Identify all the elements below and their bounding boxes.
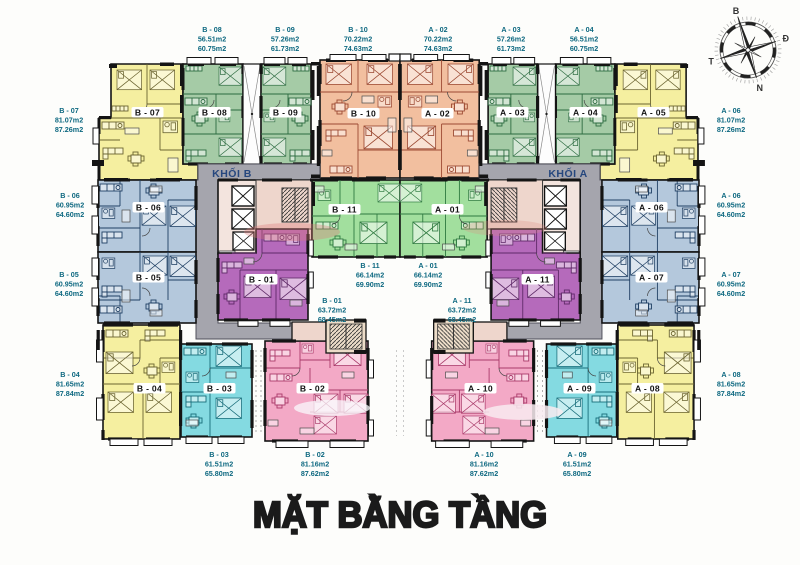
svg-text:70.22m2: 70.22m2 [344,35,372,44]
svg-text:B - 11: B - 11 [332,205,357,215]
svg-text:57.26m2: 57.26m2 [271,35,299,44]
svg-text:A - 08: A - 08 [635,384,660,394]
svg-text:60.95m2: 60.95m2 [56,201,84,210]
svg-text:A - 09: A - 09 [567,384,592,394]
svg-text:B - 03: B - 03 [207,384,232,394]
svg-text:68.45m2: 68.45m2 [318,315,346,324]
svg-text:65.80m2: 65.80m2 [563,469,591,478]
svg-text:87.62m2: 87.62m2 [301,469,329,478]
svg-text:60.95m2: 60.95m2 [717,280,745,289]
svg-text:87.26m2: 87.26m2 [717,125,745,134]
svg-text:A - 06: A - 06 [721,191,740,200]
svg-text:64.60m2: 64.60m2 [55,289,83,298]
svg-text:B - 07: B - 07 [59,106,79,115]
svg-text:66.14m2: 66.14m2 [414,271,442,280]
svg-text:A - 09: A - 09 [567,450,586,459]
svg-text:B - 01: B - 01 [322,296,342,305]
svg-text:61.51m2: 61.51m2 [563,460,591,469]
svg-text:65.80m2: 65.80m2 [205,469,233,478]
svg-text:A - 03: A - 03 [501,25,520,34]
svg-text:B - 10: B - 10 [348,25,368,34]
svg-text:69.90m2: 69.90m2 [356,280,384,289]
svg-text:64.60m2: 64.60m2 [717,289,745,298]
svg-text:57.26m2: 57.26m2 [497,35,525,44]
svg-text:B - 09: B - 09 [273,108,298,118]
svg-text:87.62m2: 87.62m2 [470,469,498,478]
svg-text:A - 10: A - 10 [468,384,493,394]
svg-text:KHỐI B: KHỐI B [212,166,252,180]
svg-text:56.51m2: 56.51m2 [198,35,226,44]
svg-text:A - 02: A - 02 [425,109,450,119]
svg-text:64.60m2: 64.60m2 [717,210,745,219]
svg-text:B - 03: B - 03 [209,450,229,459]
svg-text:MẶT BẰNG TẦNG: MẶT BẰNG TẦNG [253,494,547,535]
svg-text:A - 08: A - 08 [721,370,740,379]
svg-text:B - 08: B - 08 [202,25,222,34]
svg-text:81.07m2: 81.07m2 [717,116,745,125]
svg-text:A - 05: A - 05 [641,108,666,118]
svg-text:A - 11: A - 11 [525,275,549,285]
svg-text:74.63m2: 74.63m2 [344,44,372,53]
svg-text:A - 03: A - 03 [500,108,525,118]
svg-text:B - 06: B - 06 [136,203,161,213]
svg-text:B - 11: B - 11 [360,261,379,270]
svg-text:81.16m2: 81.16m2 [470,460,498,469]
svg-text:61.73m2: 61.73m2 [271,44,299,53]
svg-text:A - 11: A - 11 [453,296,472,305]
svg-text:A - 07: A - 07 [721,270,740,279]
svg-text:81.16m2: 81.16m2 [301,460,329,469]
svg-text:60.95m2: 60.95m2 [55,280,83,289]
svg-text:B - 05: B - 05 [136,273,161,283]
svg-text:A - 01: A - 01 [418,261,437,270]
svg-text:61.73m2: 61.73m2 [497,44,525,53]
svg-text:68.45m2: 68.45m2 [448,315,476,324]
svg-text:74.63m2: 74.63m2 [424,44,452,53]
svg-text:56.51m2: 56.51m2 [570,35,598,44]
svg-text:A - 01: A - 01 [435,205,460,215]
svg-text:A - 04: A - 04 [574,25,593,34]
svg-text:60.75m2: 60.75m2 [198,44,226,53]
svg-text:A - 07: A - 07 [639,273,664,283]
svg-text:A - 10: A - 10 [474,450,493,459]
svg-text:B - 02: B - 02 [300,384,325,394]
svg-text:Đ: Đ [783,34,790,44]
svg-text:70.22m2: 70.22m2 [424,35,452,44]
svg-text:B - 08: B - 08 [202,108,227,118]
svg-text:63.72m2: 63.72m2 [318,306,346,315]
svg-text:60.75m2: 60.75m2 [570,44,598,53]
svg-text:60.95m2: 60.95m2 [717,201,745,210]
svg-text:A - 02: A - 02 [428,25,447,34]
svg-text:B - 10: B - 10 [351,109,376,119]
svg-text:B - 02: B - 02 [305,450,325,459]
svg-text:B - 04: B - 04 [60,370,80,379]
svg-text:B - 01: B - 01 [249,275,274,285]
svg-text:KHỐI A: KHỐI A [548,166,587,180]
svg-text:87.26m2: 87.26m2 [55,125,83,134]
svg-text:66.14m2: 66.14m2 [356,271,384,280]
svg-text:81.07m2: 81.07m2 [55,116,83,125]
svg-text:B - 06: B - 06 [60,191,80,200]
svg-text:63.72m2: 63.72m2 [448,306,476,315]
svg-text:A - 06: A - 06 [639,203,664,213]
svg-text:64.60m2: 64.60m2 [56,210,84,219]
svg-text:87.84m2: 87.84m2 [717,389,745,398]
svg-text:T: T [708,56,714,66]
svg-text:A - 04: A - 04 [573,108,598,118]
svg-text:81.65m2: 81.65m2 [56,380,84,389]
svg-text:61.51m2: 61.51m2 [205,460,233,469]
svg-text:N: N [756,83,763,93]
svg-text:B: B [733,6,740,16]
svg-text:A - 06: A - 06 [721,106,740,115]
svg-text:87.84m2: 87.84m2 [56,389,84,398]
svg-text:B - 07: B - 07 [135,108,160,118]
svg-text:81.65m2: 81.65m2 [717,380,745,389]
svg-text:B - 05: B - 05 [59,270,79,279]
svg-text:69.90m2: 69.90m2 [414,280,442,289]
svg-text:B - 09: B - 09 [275,25,295,34]
svg-text:B - 04: B - 04 [137,384,162,394]
